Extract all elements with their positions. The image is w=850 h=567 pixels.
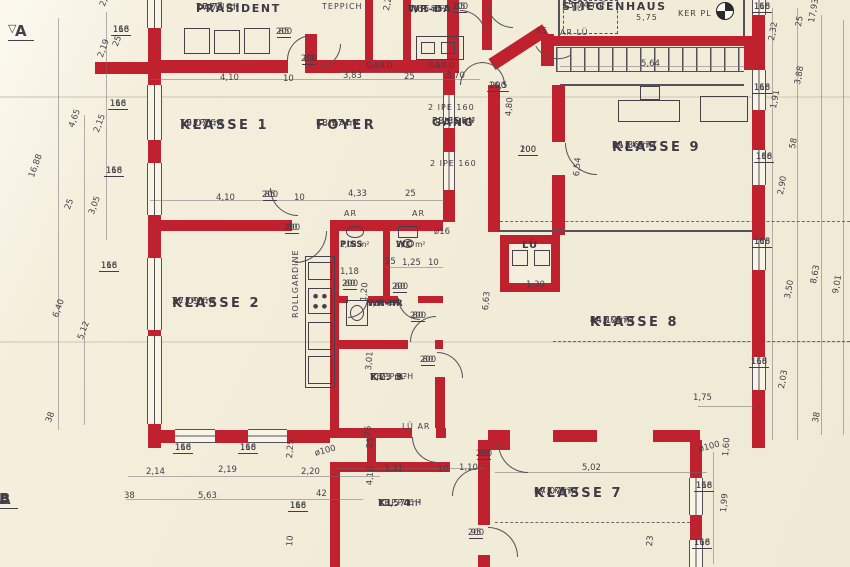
annotation-label: GARD	[428, 62, 455, 70]
dimension-label: 3,31	[384, 465, 403, 474]
label-text: 200	[468, 529, 484, 538]
label-text: 168	[756, 153, 772, 162]
annotation-label: AR	[412, 210, 425, 218]
labels-layer: PRÄSIDENT17,74 m²TEPPICHWR-DA4,65 m²FLIE…	[0, 0, 850, 567]
label-text: 168	[754, 3, 770, 12]
dimension-label: 1,10	[459, 464, 478, 473]
dimension-label: 23	[646, 535, 655, 547]
annotation-label: GARD	[366, 62, 393, 70]
dimension-label: 38	[812, 411, 822, 423]
dimension-label: 2,90	[777, 175, 789, 195]
dimension-label: ø100	[314, 444, 337, 458]
dimension-label: 2,4	[99, 0, 112, 8]
dimension-label: 2,25	[286, 439, 296, 459]
label-text: 200	[284, 224, 300, 233]
dimension-label: 4,10	[216, 194, 235, 203]
dimension-label: ø16	[434, 228, 450, 237]
dimension-label: 6,63	[482, 291, 492, 311]
dimension-label: 3,50	[784, 279, 796, 299]
dimension-label: 25	[112, 35, 124, 48]
label-text: 200	[392, 283, 408, 292]
label-text: 168	[101, 262, 117, 271]
annotation-label: ROLLGARDINE	[292, 249, 300, 318]
annotation-label: 2 IPE 160	[428, 104, 475, 112]
dimension-label: 3,88	[794, 65, 806, 85]
annotation-label: KER PL	[678, 10, 712, 18]
dimension-label: ø100	[698, 440, 721, 454]
dimension-label: 6,54	[573, 157, 583, 177]
label-text: 168	[106, 167, 122, 176]
dimension-label: 25	[64, 198, 76, 211]
dimension-label: 1,75	[693, 394, 712, 403]
dimension-label: 4,65	[68, 108, 82, 129]
label-text: 200	[520, 146, 536, 155]
annotation-label: LÜ AR	[402, 423, 431, 431]
label-text: 168	[175, 444, 191, 453]
dimension-label: 2,19	[218, 466, 237, 475]
dimension-label: 10	[286, 535, 295, 547]
label-text: 168	[694, 539, 710, 548]
dimension-label: 2,20	[301, 468, 320, 477]
label-text: 200	[452, 3, 468, 12]
dimension-label: 2,19	[97, 38, 111, 59]
dimension-label: 1,91	[770, 89, 782, 109]
label-text: 168	[751, 358, 767, 367]
label-text: 168	[110, 100, 126, 109]
dimension-label: 4,33	[348, 190, 367, 199]
label-text: 168	[240, 444, 256, 453]
dimension-label: 5,12	[77, 320, 91, 341]
dimension-label: 42	[316, 490, 327, 499]
dimension-label: 1,30	[526, 281, 545, 290]
dimension-label: 2,25	[383, 0, 395, 11]
dimension-label: 25	[795, 15, 805, 27]
dimension-label: 25	[404, 73, 415, 82]
dimension-label: 6,40	[52, 298, 66, 319]
dimension-label: 10	[283, 75, 294, 84]
dimension-label: 10	[294, 194, 305, 203]
label-text: 200	[420, 356, 436, 365]
dimension-label: 2,14	[146, 468, 165, 477]
annotation-label: 5,75	[636, 14, 658, 22]
annotation-label: TEPPICH	[322, 3, 363, 11]
dimension-label: 3,70	[446, 72, 465, 81]
dimension-label: 58	[789, 137, 799, 149]
annotation-label: AR LÜ	[560, 29, 589, 37]
dimension-label: 4,10	[220, 74, 239, 83]
dimension-label: 25	[364, 425, 373, 437]
label-text: 200	[276, 28, 292, 37]
dimension-label: 2,15	[93, 113, 107, 134]
dimension-label: 1,18	[340, 268, 359, 277]
dimension-label: 16,88	[28, 153, 44, 179]
label-text: 200	[262, 191, 278, 200]
dimension-label: 3,83	[343, 72, 362, 81]
label-text: 168	[696, 482, 712, 491]
dimension-label: 8,63	[810, 264, 822, 284]
dimension-label: 4,80	[505, 97, 515, 117]
dimension-label: 10	[438, 466, 449, 475]
dimension-label: 1,25	[402, 259, 421, 268]
dimension-label: 17,93	[808, 0, 821, 23]
dimension-label: 2,03	[778, 369, 790, 389]
floor-plan-scan: ▽A A B PRÄSIDENT17,74 m²TEPPICHWR-DA4,65…	[0, 0, 850, 567]
dimension-label: 38	[45, 411, 57, 424]
label-text: 200	[301, 55, 317, 64]
label-text: 200	[476, 450, 492, 459]
dimension-label: 9,01	[832, 274, 844, 294]
dimension-label: 5,63	[198, 492, 217, 501]
dimension-label: 1,60	[722, 437, 732, 457]
dimension-label: 2,32	[768, 21, 780, 41]
annotation-label: LÜ	[572, 5, 584, 13]
annotation-label: 85	[536, 27, 548, 35]
label-text: 168	[113, 26, 129, 35]
dimension-label: 3,01	[365, 351, 375, 371]
label-text: 200	[342, 280, 358, 289]
dimension-label: 5,64	[641, 60, 660, 69]
dimension-label: 1,99	[720, 493, 730, 513]
dimension-label: 38	[124, 492, 135, 501]
dimension-label: 1,20	[360, 282, 370, 302]
dimension-label: 25	[385, 258, 396, 267]
annotation-label: 2 IPE 160	[430, 160, 477, 168]
label-text: 168	[754, 84, 770, 93]
label-text: 168	[290, 502, 306, 511]
label-text: 168	[754, 238, 770, 247]
dimension-label: 3,05	[88, 195, 102, 216]
label-text: 200	[410, 312, 426, 321]
label-text: 200	[490, 82, 506, 91]
dimension-label: 10	[428, 259, 439, 268]
dimension-label: 4,10	[366, 466, 376, 486]
dimension-label: 25	[366, 437, 375, 449]
annotation-label: AR	[344, 210, 357, 218]
dimension-label: 5,02	[582, 464, 601, 473]
dimension-label: 25	[405, 190, 416, 199]
